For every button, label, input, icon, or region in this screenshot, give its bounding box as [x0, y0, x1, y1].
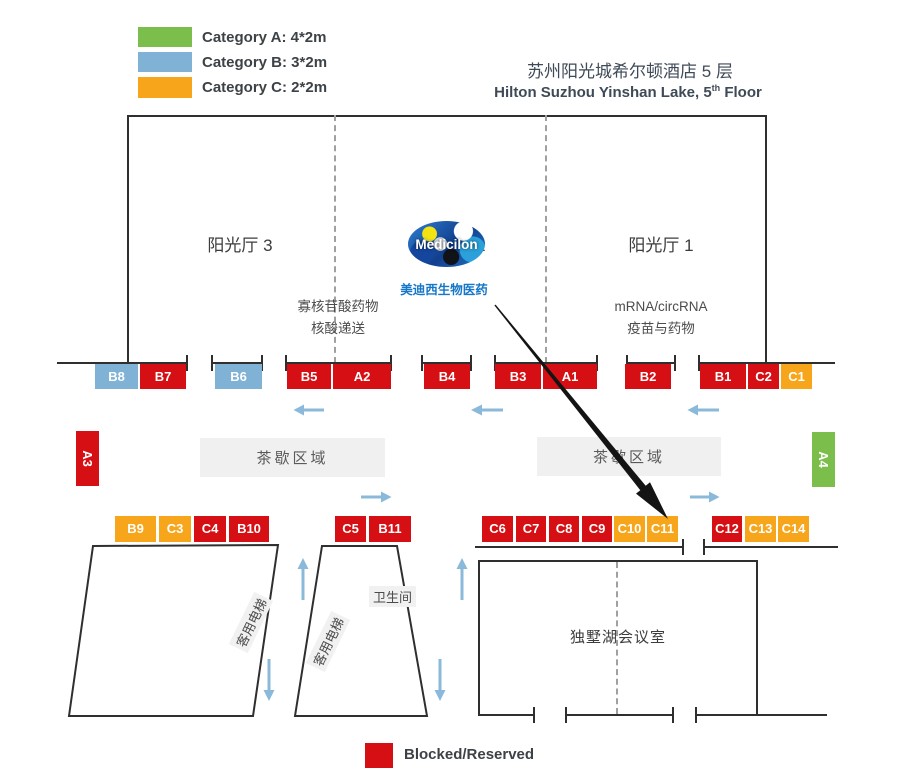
booth-c7: C7	[516, 516, 546, 542]
wall-tick	[674, 355, 676, 371]
booth-b4: B4	[424, 364, 470, 389]
floor-plan: Category A: 4*2m Category B: 3*2m Catego…	[0, 0, 900, 773]
topic-oligo-line2: 核酸递送	[311, 321, 365, 336]
booth-c10: C10	[614, 516, 645, 542]
hall-name-1: 阳光厅 1	[628, 231, 693, 256]
booth-c3: C3	[159, 516, 191, 542]
topic-mrna: mRNA/circRNA 疫苗与药物	[615, 296, 708, 340]
flow-arrow-left-icon	[293, 404, 325, 416]
wall-tick	[470, 355, 472, 371]
venue-title-cn: 苏州阳光城希尔顿酒店 5 层	[527, 57, 733, 82]
wall-tick	[565, 707, 567, 723]
tea-break-area-left: 茶歇区域	[200, 438, 385, 477]
booth-a4: A4	[812, 432, 835, 487]
wall-tick	[533, 707, 535, 723]
restroom-label: 卫生间	[369, 586, 416, 607]
elevator-label-1: 客用电梯	[229, 592, 273, 653]
booth-b6: B6	[215, 364, 262, 389]
wall-tick	[682, 539, 684, 555]
booth-c4: C4	[194, 516, 226, 542]
flow-arrow-down-icon	[434, 658, 446, 702]
flow-arrow-up-icon	[456, 557, 468, 601]
booth-c14: C14	[778, 516, 809, 542]
venue-title-en-tail: Floor	[720, 84, 762, 101]
wall-segment	[475, 546, 684, 548]
hall-name-3: 阳光厅 3	[207, 231, 272, 256]
legend-swatch-category-a	[138, 27, 192, 47]
wall-segment	[478, 714, 535, 716]
medicilon-logo-text: Medicilon	[415, 237, 477, 252]
flow-arrow-right-icon	[360, 491, 392, 503]
booth-b11: B11	[369, 516, 411, 542]
medicilon-caption: 美迪西生物医药	[400, 279, 488, 298]
venue-title-en-sup: th	[712, 83, 721, 93]
booth-b3: B3	[495, 364, 541, 389]
flow-arrow-right-icon	[689, 491, 720, 503]
booth-a2: A2	[333, 364, 391, 389]
legend-label-category-a: Category A: 4*2m	[202, 29, 326, 46]
flow-arrow-down-icon	[263, 658, 275, 702]
wall-tick	[695, 707, 697, 723]
tea-break-area-right: 茶歇区域	[537, 437, 721, 476]
wall-tick	[421, 355, 423, 371]
topic-mrna-line1: mRNA/circRNA	[615, 299, 708, 314]
booth-a3: A3	[76, 431, 99, 486]
wall-tick	[211, 355, 213, 371]
booth-a4-label: A4	[816, 451, 831, 468]
wall-segment	[695, 714, 827, 716]
legend-label-category-c: Category C: 2*2m	[202, 79, 327, 96]
medicilon-logo: Medicilon	[408, 221, 485, 267]
booth-a1: A1	[543, 364, 597, 389]
booth-c12: C12	[712, 516, 742, 542]
flow-arrow-left-icon	[687, 404, 720, 416]
booth-c11: C11	[647, 516, 678, 542]
legend-label-category-b: Category B: 3*2m	[202, 54, 327, 71]
booth-c8: C8	[549, 516, 579, 542]
wall-segment	[703, 546, 838, 548]
wall-tick	[703, 539, 705, 555]
topic-mrna-line2: 疫苗与药物	[627, 321, 695, 336]
booth-c13: C13	[745, 516, 776, 542]
hall-divider-right	[545, 115, 547, 363]
booth-c9: C9	[582, 516, 612, 542]
booth-b9: B9	[115, 516, 156, 542]
booth-c6: C6	[482, 516, 513, 542]
legend-swatch-category-c	[138, 77, 192, 98]
booth-b10: B10	[229, 516, 269, 542]
booth-b7: B7	[140, 364, 186, 389]
wall-tick	[186, 355, 188, 371]
wall-tick	[672, 707, 674, 723]
venue-title-en-main: Hilton Suzhou Yinshan Lake, 5	[494, 84, 712, 101]
booth-b2: B2	[625, 364, 671, 389]
blocked-swatch	[365, 743, 393, 768]
meeting-room-label: 独墅湖会议室	[570, 626, 666, 647]
booth-a3-label: A3	[80, 450, 95, 467]
booth-c2: C2	[748, 364, 779, 389]
booth-b5: B5	[287, 364, 331, 389]
blocked-label: Blocked/Reserved	[404, 746, 534, 763]
elevator-label-2: 客用电梯	[306, 611, 350, 672]
venue-title-en: Hilton Suzhou Yinshan Lake, 5th Floor	[494, 83, 762, 101]
booth-b1: B1	[700, 364, 746, 389]
booth-c1: C1	[781, 364, 812, 389]
flow-arrow-up-icon	[297, 557, 309, 601]
booth-c5: C5	[335, 516, 366, 542]
topic-oligo: 寡核苷酸药物 核酸递送	[298, 296, 379, 340]
legend-swatch-category-b	[138, 52, 192, 72]
wall-segment	[565, 714, 674, 716]
topic-oligo-line1: 寡核苷酸药物	[298, 299, 379, 314]
flow-arrow-left-icon	[470, 404, 504, 416]
booth-b8: B8	[95, 364, 138, 389]
